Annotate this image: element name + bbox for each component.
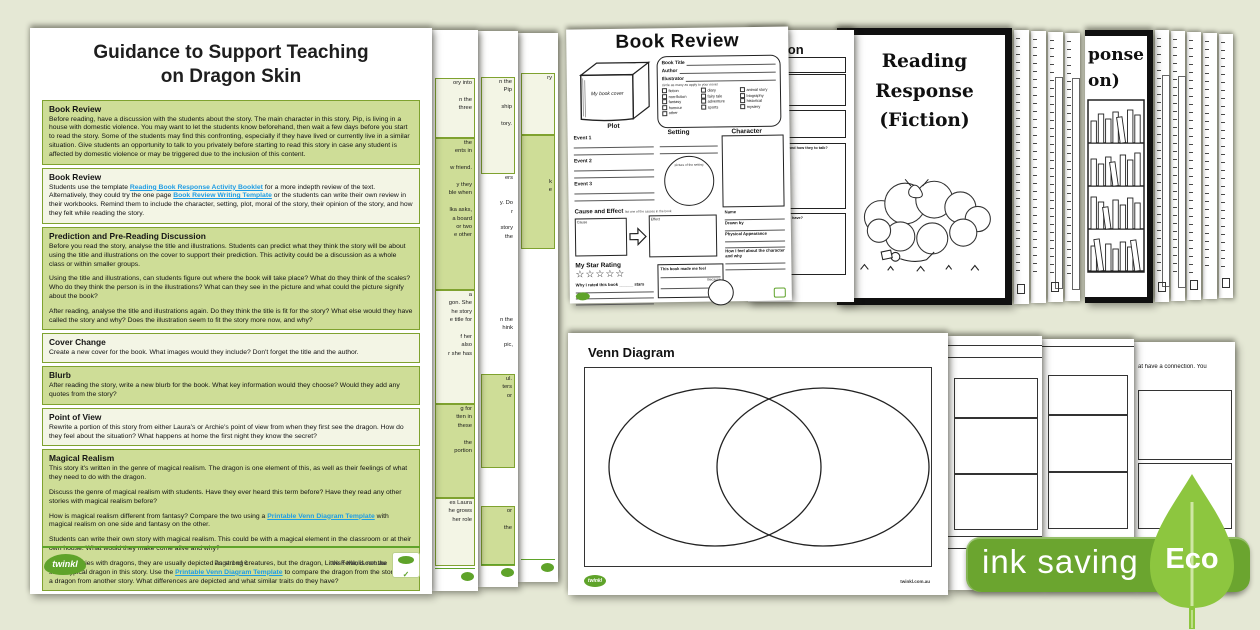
page-edge-text-fragment: w friend. [436,164,474,172]
field-label: Illustrator [662,77,684,82]
page-edge-text-fragment [436,156,474,164]
page-edge-text-fragment: gon. She [436,299,474,307]
page-edge-text-fragment: he story [436,308,474,316]
write-line[interactable] [574,193,654,201]
arrow-right-icon [629,226,647,246]
hyperlink[interactable]: Book Review Writing Template [173,192,272,199]
character-details-column: Name Drawn by Physical Appearance How I … [725,209,786,271]
stacked-page-edge [1203,33,1217,299]
ruled-lines [1221,42,1225,272]
page-edge-text-fragment [482,112,514,120]
page-content-edge [1055,77,1063,289]
quality-badge: ✓ [392,552,420,578]
page-edge-block: es Laurahe growsher role [435,498,475,566]
cause-label: Cause [577,220,587,224]
genre-column-2: diaryfairy taleadventuresports [701,87,737,115]
checkbox-icon[interactable] [662,111,667,116]
footer-mark [1051,282,1059,292]
page-edge-text-fragment: n the [482,78,514,86]
page-edge-3: ry ke [518,33,558,582]
cause-effect-label: Cause and Effect [575,209,624,216]
eco-label: Eco [1160,543,1224,576]
hyperlink[interactable]: Printable Venn Diagram Template [267,513,375,520]
page-edge-block [435,30,475,78]
cause-effect-note: list one of the causes in the book [625,209,671,214]
setting-circle-caption: picture of the setting [675,163,704,167]
page-edge-text-fragment [482,515,514,523]
page-edge-text-fragment: ble when [436,189,474,197]
activity-text-fragment: at have a connection. You [1138,364,1234,370]
guidance-paragraph: How is magical realism different from fa… [49,513,413,531]
page-edge-text-fragment [482,95,514,103]
page-edge-text-fragment: ents in [436,147,474,155]
page-footer: twinkl Page 1 of 6 visit twinkl.com.au ✓ [42,546,420,584]
ruled-lines [1205,41,1209,273]
twinkl-logo: twinkl [584,575,606,587]
page-edge-text-fragment: her role [436,516,474,524]
checkbox-icon[interactable] [701,94,706,99]
guidance-section: Book ReviewStudents use the template Rea… [42,168,420,224]
checkbox-icon[interactable] [740,93,745,98]
guidance-sections: Book ReviewBefore reading, have a discus… [42,100,420,592]
page-edge-block [481,31,515,77]
ruled-lines [1016,38,1020,278]
plot-heading: Plot [573,122,653,130]
text-segment: Rewrite a portion of this story from eit… [49,424,404,440]
page-edge-block: ory into n thethree [435,78,475,138]
page-edge-block: ul.tersor [481,374,515,468]
ruled-lines [1173,39,1177,275]
checkbox-icon[interactable] [740,87,745,92]
field-label: Author [662,69,678,74]
guidance-paragraph: Using the title and illustrations, can s… [49,275,413,301]
guidance-paragraph: After reading, analyse the title and ill… [49,308,413,326]
stacked-page-edge [1048,32,1063,302]
page-edge-text-fragment: e other [436,231,474,239]
cover-title-line1: Reading Response [844,47,1005,106]
guidance-paragraph: This story it's written in the genre of … [49,465,413,483]
guidance-section-heading: Cover Change [49,337,413,348]
worksheet-title: Venn Diagram [588,345,675,360]
page-edge-text-fragment: es Laura [436,499,474,507]
cut-out-box [954,378,1038,418]
guidance-section: Cover ChangeCreate a new cover for the b… [42,333,420,363]
page-edge-text-fragment: the [482,524,514,532]
rating-caption-text: Why I rated this book ______ stars [576,281,645,287]
stacked-page-edge [1187,32,1201,300]
twinkl-badge-icon [398,556,414,564]
checkbox-icon[interactable] [662,94,667,99]
page-edge-text-fragment [436,173,474,181]
ruled-lines [1033,39,1037,277]
cut-out-box [1048,472,1128,529]
feelings-label: This book made me feel [660,266,705,272]
page-edge-text-fragment: hink [481,324,515,332]
drawn-by-label: Drawn by [725,220,744,225]
cover-title: Reading Response (Fiction) [844,47,1005,136]
venn-diagram-worksheet: Venn Diagram twinkl twinkl.com.au [568,333,948,595]
book-cover-label: My book cover [591,91,624,97]
twinkl-logo [461,572,474,581]
page-edge-text-fragment: or [482,507,514,515]
page-title-line2: on Dragon Skin [30,65,432,89]
star-icon[interactable]: ☆ [585,269,595,280]
genre-label: sports [708,104,719,110]
guidance-section: Point of ViewRewrite a portion of this s… [42,408,420,447]
guidance-paragraph: After reading the story, write a new blu… [49,382,413,400]
feelings-drawing-circle [708,279,734,305]
book-info-fields: Book TitleAuthorIllustrator [662,58,776,83]
text-segment: How is magical realism different from fa… [49,513,267,520]
page-edge-block: n thePip ship tory. [481,77,515,174]
setting-lines [660,139,718,154]
write-line[interactable] [686,74,776,82]
ink-saving-label: ink saving [982,543,1139,581]
guidance-paragraph: Before reading, have a discussion with t… [49,116,413,160]
page-edge-text-fragment: y they [436,181,474,189]
page-edge-block [481,468,515,506]
page-edge-text-fragment: ters [482,383,514,391]
page-edge-text-fragment: Pip [482,86,514,94]
page-edge-block: ers y. Dor storythe [481,174,515,316]
page-edge-block: g fortten inthese theportion [435,404,475,498]
cause-box: Cause [575,218,628,257]
page-edge-block [521,249,555,499]
text-segment: Before you read the story, analyse the t… [49,243,406,268]
checkbox-icon[interactable] [740,99,745,104]
page-edge-text-fragment: lka asks, [436,206,474,214]
cut-out-box [1048,415,1128,472]
star-icon[interactable]: ☆ [615,269,625,280]
page-title-line1: Guidance to Support Teaching [30,41,432,65]
field-label: Book Title [662,61,685,66]
stacked-page-edge [1171,31,1185,301]
page-edge-text-fragment [522,170,554,178]
genre-column-1: fictionnon-fictionfantasyhumourother [662,88,698,116]
page-edge-text-fragment: also [436,341,474,349]
page-edge-text-fragment [481,191,515,199]
checkbox-icon[interactable] [662,100,667,105]
quality-badge [774,288,786,298]
page-edge-text-fragment [481,333,515,341]
page-edge-block: ry [521,73,555,135]
guidance-paragraph: Create a new cover for the book. What im… [49,349,413,358]
guidance-section: BlurbAfter reading the story, write a ne… [42,366,420,405]
page-edge-text-fragment: tten in [436,413,474,421]
page-edge-footer [435,568,475,585]
twinkl-logo [501,568,514,577]
page-edge-text-fragment: ry [522,74,554,82]
ruled-lines [1157,38,1161,276]
write-line[interactable] [679,66,775,74]
character-drawing-box [722,135,785,208]
cut-out-box [954,418,1038,474]
genre-checklist: fictionnon-fictionfantasyhumourother dia… [662,87,776,117]
page-edge-text-fragment [522,153,554,161]
guidance-section-heading: Book Review [49,104,413,115]
page-edge-text-fragment: n the [481,316,515,324]
page-edge-text-fragment: pic, [481,341,515,349]
page-edge-footer [521,559,555,576]
page-edge-block: ke [521,135,555,249]
page-edge-text-fragment: or two [436,223,474,231]
page-edge-text-fragment: ory into [436,79,474,87]
page-edge-text-fragment: three [436,104,474,112]
write-line[interactable] [574,147,654,155]
book-review-worksheet: Book Review My book cover Plot Book Titl… [566,26,792,303]
text-segment: Discuss the genre of magical realism wit… [49,489,401,505]
ruled-lines [1050,40,1054,276]
guidance-paragraph: Discuss the genre of magical realism wit… [49,489,413,507]
footer-divider [42,546,420,548]
page-content-edge [1178,76,1186,288]
page-edge-text-fragment: r [481,208,515,216]
page-edge-text-fragment: the [436,139,474,147]
page-edge-text-fragment [436,87,474,95]
page-edge-text-fragment: k [522,178,554,186]
guidance-paragraph: Before you read the story, analyse the t… [49,243,413,269]
stacked-page-edge [1014,30,1029,304]
checkbox-icon[interactable] [740,104,745,109]
write-line[interactable] [574,170,654,178]
page-content-edge [1072,78,1080,290]
checkbox-icon[interactable] [701,99,706,104]
plot-events: Event 1Event 2Event 3 [574,131,655,201]
cover-title-line2: (Fiction) [844,106,1005,136]
page-edge-block: n thehink pic, [481,316,515,374]
page-edge-text-fragment: ul. [482,375,514,383]
cover-title-fragment: ponse on) [1085,42,1147,95]
page-edge-text-fragment: or [482,392,514,400]
stacked-page-edge [1065,33,1080,301]
checkbox-icon[interactable] [701,105,706,110]
footer-mark [1158,282,1166,292]
guidance-page: Guidance to Support Teaching on Dragon S… [30,28,432,594]
footer-mark [1017,284,1025,294]
genre-label: mystery [747,104,761,110]
page-edge-footer [481,564,515,581]
page-edge-text-fragment [481,182,515,190]
site-url: twinkl.com.au [900,579,930,584]
text-segment: Create a new cover for the book. What im… [49,349,359,356]
page-edge-text-fragment: e title for [436,316,474,324]
guidance-paragraph: Rewrite a portion of this story from eit… [49,424,413,442]
page-edge-text-fragment: f her [436,333,474,341]
cover-title-fragment-line1: ponse [1088,42,1147,68]
page-edge-block: theents in w friend. y theyble when lka … [435,138,475,290]
guidance-section-heading: Prediction and Pre-Reading Discussion [49,231,413,242]
checkbox-icon[interactable] [662,88,667,93]
venn-frame [584,367,932,567]
page-edge-1: ory into n thethreetheents in w friend. … [432,30,478,591]
twinkl-logo-text: twinkl [588,578,602,584]
twinkl-logo [541,563,554,572]
page-edge-block: or the [481,506,515,566]
page-edge-text-fragment: story [481,224,515,232]
page-edge-text-fragment: ship [482,103,514,111]
checkbox-icon[interactable] [662,105,667,110]
hyperlink[interactable]: Reading Book Response Activity Booklet [130,184,263,191]
guidance-section: Book ReviewBefore reading, have a discus… [42,100,420,165]
star-icon[interactable]: ☆ [595,269,605,280]
cut-out-box [1048,375,1128,415]
page-edge-text-fragment: a [436,291,474,299]
reading-response-cover-back: ponse on) [1085,30,1153,303]
cut-out-box [1138,390,1232,460]
setting-heading: Setting [667,129,689,136]
name-label: Name [725,209,736,214]
ruled-lines [1067,41,1071,275]
genre-column-3: animal storybiographyhistoricalmystery [740,87,776,115]
page-title: Guidance to Support Teaching on Dragon S… [30,41,432,90]
guidance-section-heading: Book Review [49,172,413,183]
page-edge-text-fragment [522,136,554,144]
setting-drawing-circle: picture of the setting [664,156,715,207]
page-edge-text-fragment: a board [436,215,474,223]
star-icon[interactable]: ☆ [605,269,615,280]
genre-label: other [669,110,678,116]
page-edge-text-fragment: he grows [436,507,474,515]
genre-option[interactable]: other [662,110,698,116]
site-url: visit twinkl.com.au [333,561,386,567]
page-edge-text-fragment [436,325,474,333]
ruled-lines [1189,40,1193,274]
page-edge-block: agon. Shehe storye title for f heralsor … [435,290,475,404]
effect-box: Effect [649,214,718,257]
text-segment: This story it's written in the genre of … [49,465,407,481]
page-edge-text-fragment: g for [436,405,474,413]
page-edge-text-fragment: the [481,233,515,241]
text-segment: After reading the story, write a new blu… [49,382,400,398]
book-info-panel: Book TitleAuthorIllustrator circle as ma… [656,55,781,129]
stacked-page-edge [1219,34,1233,298]
star-rating-icons: ☆☆☆☆☆ [575,269,625,281]
text-segment: Students use the template [49,184,130,191]
stacked-page-edge [1031,31,1046,303]
page-edge-text-fragment: portion [436,447,474,455]
page-edge-text-fragment [436,430,474,438]
resource-preview-collage: ry ke n thePip ship tory.ers y. Dor stor… [0,0,1260,630]
guidance-paragraph: Students use the template Reading Book R… [49,184,413,219]
page-edge-2: n thePip ship tory.ers y. Dor storythen … [478,31,518,587]
page-edge-text-fragment [522,161,554,169]
appearance-label: Physical Appearance [725,231,767,237]
page-edge-block [521,33,555,73]
worksheet-title: Book Review [566,29,788,54]
genre-option[interactable]: sports [701,104,737,110]
page-edge-text-fragment: r she has [436,350,474,358]
text-segment: Before reading, have a discussion with t… [49,116,410,158]
page-edge-text-fragment: tory. [482,120,514,128]
venn-circles [585,368,931,566]
footer-mark [1190,280,1198,290]
page-edge-text-fragment: n the [436,96,474,104]
guidance-section: Prediction and Pre-Reading DiscussionBef… [42,227,420,331]
guidance-section-heading: Magical Realism [49,453,413,464]
effect-label: Effect [651,217,660,221]
cover-title-fragment-line2: on) [1088,68,1147,94]
text-segment: After reading, analyse the title and ill… [49,308,412,324]
reading-response-cover: Reading Response (Fiction) [837,28,1012,305]
check-icon: ✓ [403,570,410,579]
write-line[interactable] [687,58,776,66]
page-content-edge [1162,75,1170,287]
star-icon[interactable]: ☆ [575,269,585,280]
dragon-cloud-illustration [847,150,1002,290]
page-edge-text-fragment [436,198,474,206]
page-edge-text-fragment [481,216,515,224]
page-edge-text-fragment: these [436,422,474,430]
checkbox-icon[interactable] [701,88,706,93]
bookshelf-illustration [1087,99,1145,274]
page-edge-text-fragment: e [522,186,554,194]
footer-mark [1222,278,1230,288]
page-edge-text-fragment: ers [481,174,515,182]
stacked-page-edge [1155,30,1169,302]
genre-option[interactable]: mystery [740,103,776,109]
guidance-section-heading: Blurb [49,370,413,381]
guidance-section-heading: Point of View [49,412,413,423]
text-segment: Using the title and illustrations, can s… [49,275,410,300]
page-edge-text-fragment [522,144,554,152]
cut-out-box [954,474,1038,530]
book-cover-illustration: My book cover [573,58,656,123]
page-edge-text-fragment: the [436,439,474,447]
page-edge-text-fragment: y. Do [481,199,515,207]
